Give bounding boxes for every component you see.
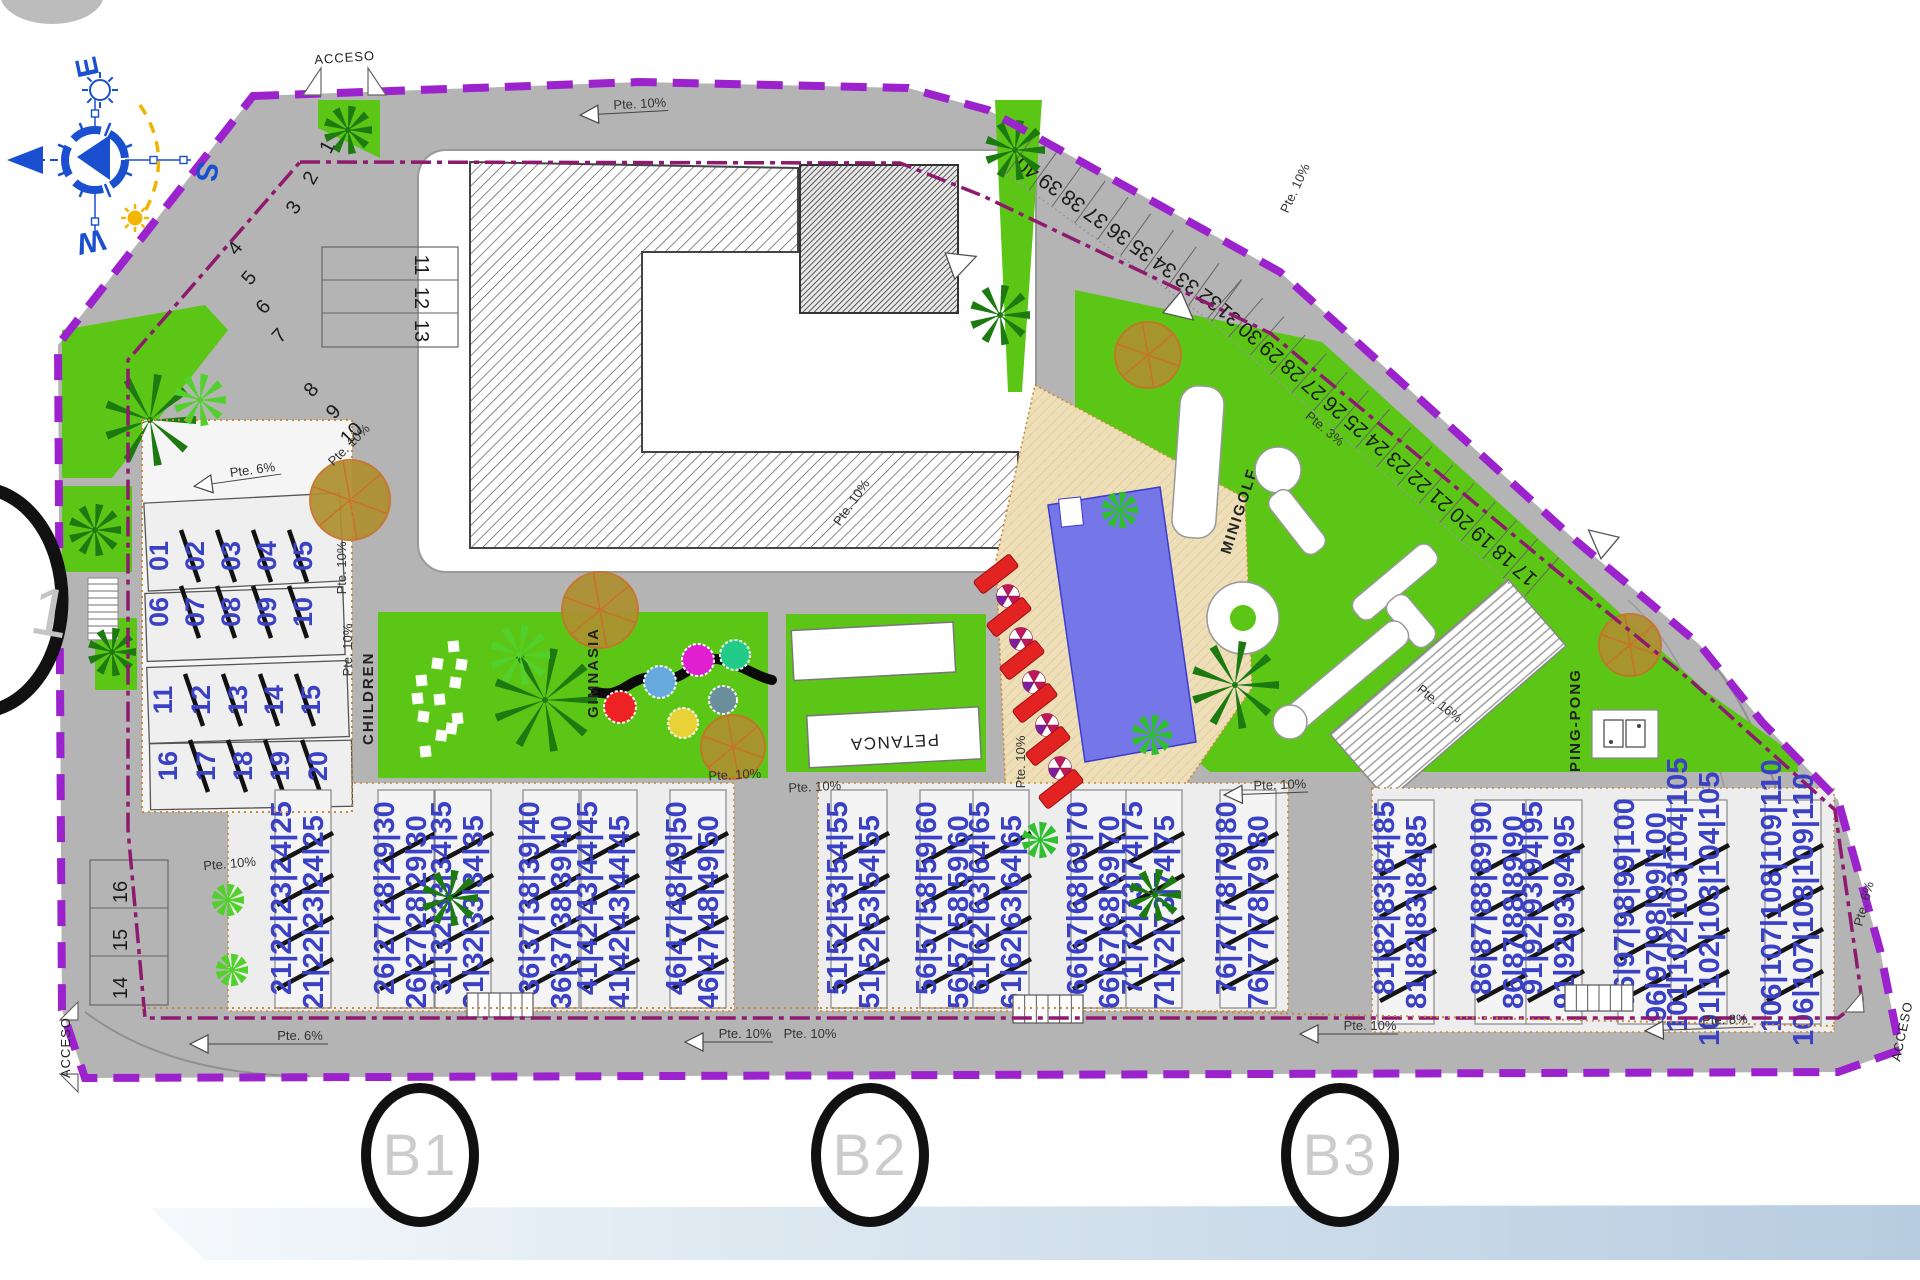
- pool-steps: [1059, 497, 1084, 527]
- plot-number: 19: [265, 751, 295, 781]
- plot-number-column: 46|47|48|49|50: [661, 801, 693, 995]
- slope-label-group: Pte. 10%: [334, 541, 349, 594]
- plot-number: 05: [288, 541, 318, 571]
- palm-center: [1232, 682, 1238, 688]
- gym-equipment-circle: [604, 691, 636, 723]
- plot-number: 17: [191, 751, 221, 781]
- play-square: [449, 676, 461, 688]
- play-square: [420, 745, 432, 757]
- petanca-court: [791, 622, 955, 680]
- play-square: [412, 692, 424, 704]
- corner-blob: [0, 0, 104, 24]
- ping-pong-pad: [1592, 710, 1658, 758]
- palm-center: [447, 895, 453, 901]
- gym-equipment-circle: [682, 644, 714, 676]
- sun-ray: [108, 98, 112, 102]
- plot-number-column: 26|27|28|29|30: [369, 801, 401, 995]
- slope-label: Pte. 6%: [277, 1028, 323, 1043]
- ping-pong-ball-icon: [1637, 724, 1641, 728]
- entrance-arrow-icon: [368, 68, 386, 95]
- sun-ray: [108, 77, 112, 81]
- plot-number-column: 71|72|73|74|75: [1149, 815, 1181, 1009]
- plot-number-column: 21|22|23|24|25: [266, 801, 298, 995]
- plot-number-column: 101|102|103|104|105: [1694, 772, 1726, 1046]
- plot-number-column: 106|107|108|109|110: [1756, 759, 1788, 1032]
- sun-ray: [125, 208, 129, 212]
- plot-number-column: 36|37|38|39|40: [514, 801, 546, 995]
- ping-pong-table-icon: [1626, 720, 1645, 747]
- palm-center: [517, 652, 523, 658]
- plot-number: 02: [180, 541, 210, 571]
- plot-number: 06: [144, 597, 174, 627]
- plot-number: 04: [252, 541, 282, 571]
- plot-number: 01: [144, 541, 174, 571]
- plot-number-column: 76|77|78|79|80: [1211, 801, 1243, 995]
- section-label: B1: [383, 1123, 458, 1188]
- slope-label: Pte. 10%: [1344, 1018, 1397, 1033]
- plot-number-column: 86|87|88|89|90: [1466, 801, 1498, 995]
- slope-label: Pte. 10%: [788, 778, 842, 796]
- gimnasia-label: GIMNASIA: [585, 627, 602, 718]
- palm-center: [1117, 507, 1123, 513]
- sun-ray: [125, 224, 129, 228]
- play-square: [416, 674, 428, 686]
- olive-tree-icon: [310, 460, 390, 540]
- play-square: [448, 640, 460, 652]
- play-square: [452, 712, 464, 724]
- section-label: B2: [833, 1123, 908, 1188]
- plot-number: 09: [252, 597, 282, 627]
- slope-label: Pte. 10%: [1277, 161, 1313, 216]
- sun-ray: [141, 208, 145, 212]
- acceso-top: ACCESO: [303, 48, 386, 95]
- palm-center: [92, 527, 98, 533]
- palm-center: [225, 897, 231, 903]
- stairs-icon: [1565, 985, 1633, 1011]
- slope-label: Pte. 10%: [784, 1026, 837, 1041]
- section-marker-b1: B1: [366, 1088, 474, 1222]
- plot-number-column: 106|107|108|109|110: [1788, 773, 1820, 1046]
- plot-number: 03: [216, 541, 246, 571]
- slope-label: Pte. 10%: [613, 95, 667, 113]
- plot-number-column: 46|47|48|49|50: [693, 815, 725, 1009]
- sun-icon-yellow: [121, 204, 149, 232]
- minigolf-hole: [1230, 605, 1256, 631]
- palm-center: [1012, 147, 1018, 153]
- parking-space-number: 14: [110, 977, 132, 999]
- palm-center: [542, 697, 548, 703]
- slope-label: Pte. 10%: [334, 541, 349, 594]
- gym-equipment-circle: [720, 640, 750, 670]
- compass-west-label: W: [73, 222, 108, 260]
- slope-label-group: Pte. 10%: [1013, 735, 1028, 788]
- play-square: [445, 722, 457, 734]
- slope-label-group: Pte. 10%: [708, 766, 762, 784]
- plot-number: 10: [288, 597, 318, 627]
- plot-number-column: 81|82|83|84|85: [1369, 801, 1401, 995]
- stairs-icon: [467, 993, 533, 1017]
- plot-number: 11: [148, 686, 178, 715]
- slope-label-group: Pte. 10%: [784, 1026, 837, 1041]
- minigolf-piece: [1255, 447, 1301, 493]
- plot-number: 12: [186, 685, 216, 715]
- plot-number-column: 51|52|53|54|55: [822, 801, 854, 995]
- palm-center: [229, 967, 235, 973]
- plot-number-column: 76|77|78|79|80: [1243, 815, 1275, 1009]
- plot-number-column: 56|57|58|59|60: [911, 801, 943, 995]
- acceso-label: ACCESO: [58, 1017, 73, 1078]
- gym-equipment-circle: [644, 666, 676, 698]
- parking-space-number: 16: [110, 881, 132, 903]
- plot-number-column: 91|92|93|94|95: [1517, 801, 1549, 995]
- plot-number-column: 101|102|103|104|105: [1662, 758, 1694, 1032]
- slope-label: Pte. 10%: [1253, 776, 1307, 793]
- plot-number-column: 41|42|43|44|45: [572, 801, 604, 995]
- plot-number: 14: [259, 685, 289, 715]
- plot-number: 20: [303, 751, 333, 781]
- slope-label-group: Pte. 10%: [788, 778, 842, 796]
- plot-number: 15: [296, 685, 326, 715]
- parking-space-number: 11: [410, 255, 432, 276]
- plot-number-column: 66|67|68|69|70: [1062, 801, 1094, 995]
- olive-tree-icon: [1115, 322, 1181, 388]
- play-square: [431, 657, 443, 669]
- plot-number-column: 61|62|63|64|65: [964, 801, 996, 995]
- play-square: [434, 693, 446, 705]
- play-square: [417, 710, 429, 722]
- entrance-arrow-icon: [303, 68, 321, 95]
- palm-center: [997, 312, 1003, 318]
- parking-space-number: 13: [410, 320, 432, 342]
- sun-ray: [141, 224, 145, 228]
- gym-equipment-circle: [709, 686, 737, 714]
- compass-west-arrow-icon: [7, 146, 43, 174]
- plot-number-column: 81|82|83|84|85: [1401, 815, 1433, 1009]
- plot-number-column: 21|22|23|24|25: [298, 815, 330, 1009]
- plot-number-column: 91|92|93|94|95: [1549, 815, 1581, 1009]
- slope-label: Pte. 10%: [1013, 735, 1028, 788]
- palm-center: [109, 649, 115, 655]
- plot-number: 13: [223, 685, 253, 715]
- slope-label: Pte. 10%: [708, 766, 762, 784]
- children-label: CHILDREN: [360, 652, 377, 746]
- compass-tick: [180, 157, 187, 164]
- play-square: [455, 658, 467, 670]
- slope-label-group: Pte. 10%: [1277, 161, 1313, 216]
- gym-equipment-circle: [668, 708, 698, 738]
- sun-ray: [87, 98, 91, 102]
- plot-number: 18: [228, 751, 258, 781]
- compass-tick: [92, 110, 99, 117]
- parking-space-number: 12: [410, 287, 432, 309]
- palm-center: [1149, 732, 1155, 738]
- slope-label-group: Pte. 10%: [340, 623, 355, 676]
- building-annex-roof: [800, 165, 958, 313]
- palm-center: [345, 127, 351, 133]
- plot-number-column: 96|97|98|99|100: [1609, 798, 1641, 1008]
- plot-number-column: 41|42|43|44|45: [604, 815, 636, 1009]
- ping-pong-area: [1592, 710, 1658, 758]
- olive-tree-icon: [1599, 614, 1661, 676]
- ping-pong-ball-icon: [1609, 740, 1613, 744]
- plot-number: 07: [180, 597, 210, 627]
- ping-pong-label: PING-PONG: [1567, 668, 1584, 772]
- compass-tick: [150, 157, 157, 164]
- slope-label: Pte. 10%: [719, 1026, 772, 1041]
- plot-number: 16: [153, 751, 183, 781]
- section-marker-b3: B3: [1286, 1088, 1394, 1222]
- minigolf-piece: [1273, 705, 1307, 739]
- section-marker-b2: B2: [816, 1088, 924, 1222]
- palm-center: [1152, 892, 1158, 898]
- plot-number-column: 51|52|53|54|55: [854, 815, 886, 1009]
- parking-space-number: 15: [110, 929, 132, 951]
- site-plan: PETANCA 01020304050607080910111213141516…: [0, 0, 1920, 1280]
- section-label: B3: [1303, 1123, 1378, 1188]
- slope-label: Pte. 10%: [340, 623, 355, 676]
- slope-label: Pte. 8%: [1702, 1011, 1748, 1028]
- palm-center: [1037, 837, 1043, 843]
- acceso-label: ACCESO: [314, 48, 376, 67]
- plot-number: 08: [216, 597, 246, 627]
- palm-center: [197, 397, 203, 403]
- ping-pong-table-icon: [1604, 720, 1623, 747]
